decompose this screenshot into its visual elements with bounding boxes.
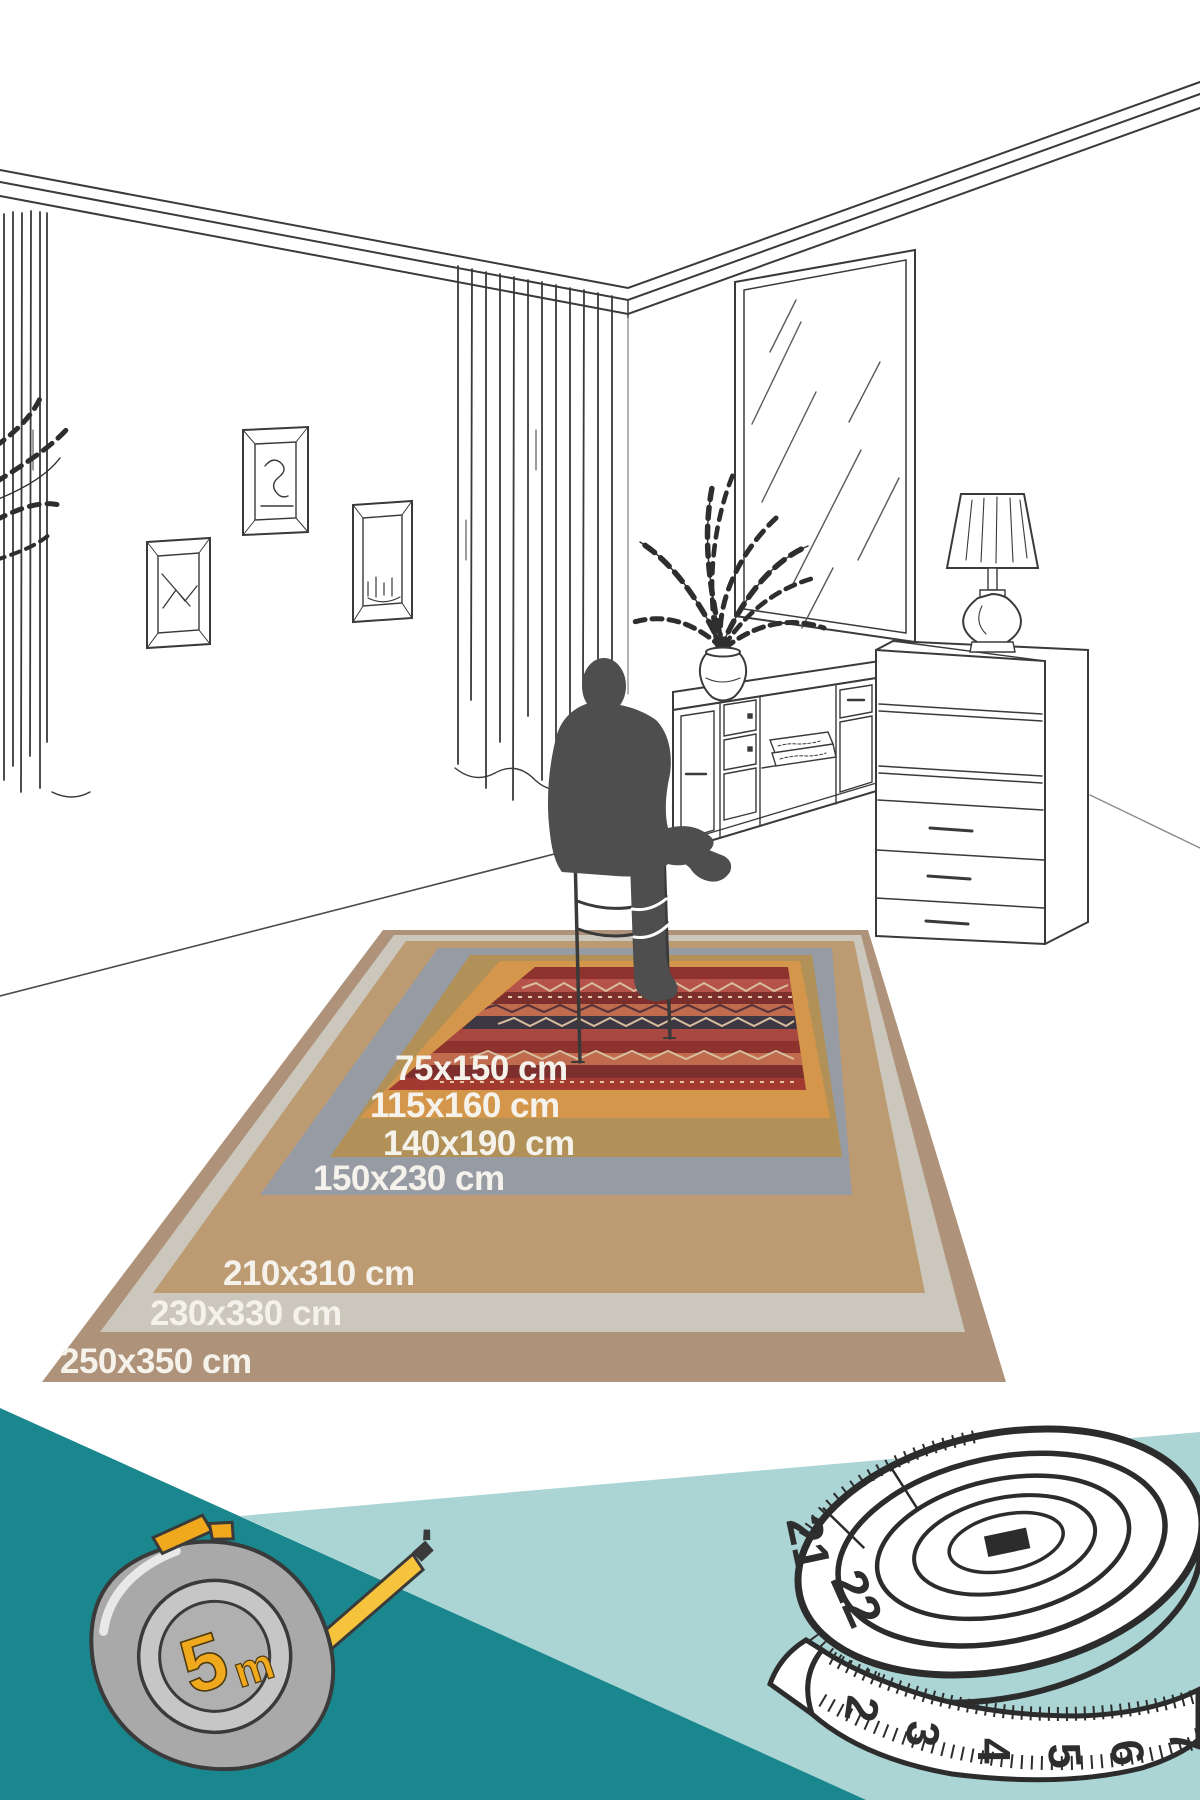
rug-size-label-75x150: 75x150 cm: [395, 1051, 568, 1086]
picture-frame-left: [147, 538, 210, 648]
plant-vase: [700, 648, 746, 701]
rug-size-label-115x160: 115x160 cm: [370, 1088, 560, 1123]
table-lamp: [947, 494, 1038, 652]
band-number-3: 3: [896, 1719, 950, 1748]
ceiling-molding: [0, 82, 1200, 318]
rug-size-label-250x350: 250x350 cm: [60, 1344, 252, 1379]
infographic-canvas: 5 m 21 22 2 3: [0, 0, 1200, 1800]
rug-size-label-150x230: 150x230 cm: [313, 1161, 505, 1196]
side-number-21: 21: [775, 1511, 841, 1577]
left-plant: [0, 394, 68, 560]
band-number-5: 5: [1038, 1741, 1092, 1770]
shelving-unit: [876, 641, 1088, 944]
sewing-tape-roll: 21 22 2 3 4 5 6 7: [770, 1394, 1200, 1780]
picture-frame-right: [353, 501, 412, 622]
band-number-4: 4: [968, 1738, 1020, 1764]
rug-size-label-230x330: 230x330 cm: [150, 1296, 342, 1331]
rug-size-label-210x310: 210x310 cm: [223, 1256, 415, 1291]
picture-frame-middle: [243, 427, 308, 535]
floor-line-right: [1090, 795, 1200, 848]
scene-artwork: 5 m 21 22 2 3: [0, 0, 1200, 1800]
rug-size-label-140x190: 140x190 cm: [383, 1126, 575, 1161]
